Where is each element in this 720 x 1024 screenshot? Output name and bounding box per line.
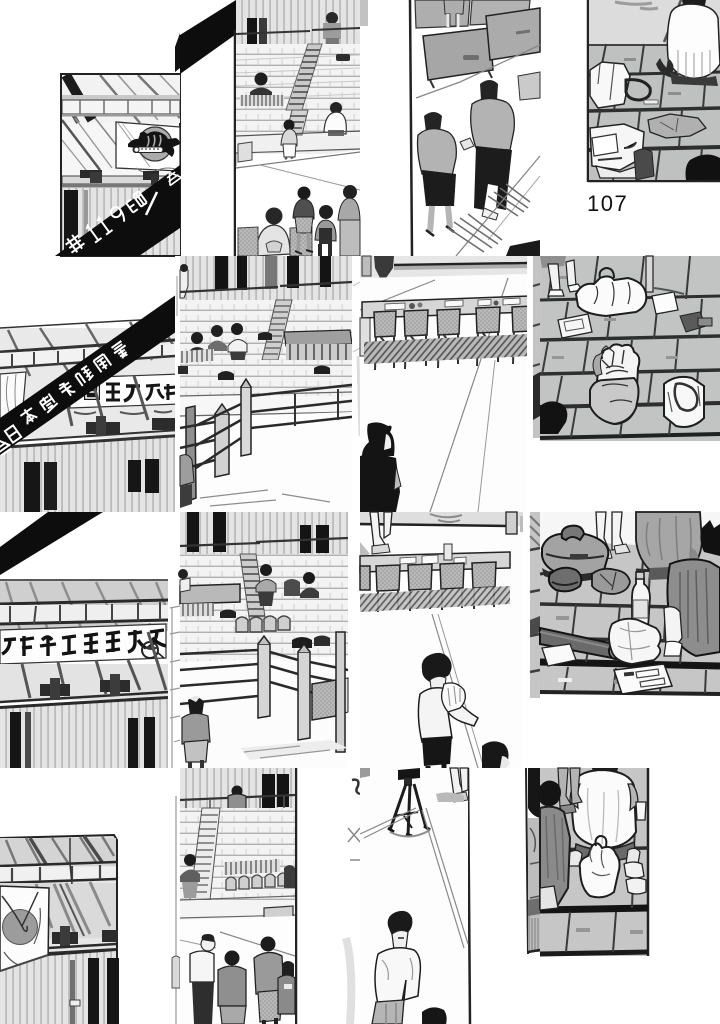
- svg-text:107: 107: [587, 191, 628, 216]
